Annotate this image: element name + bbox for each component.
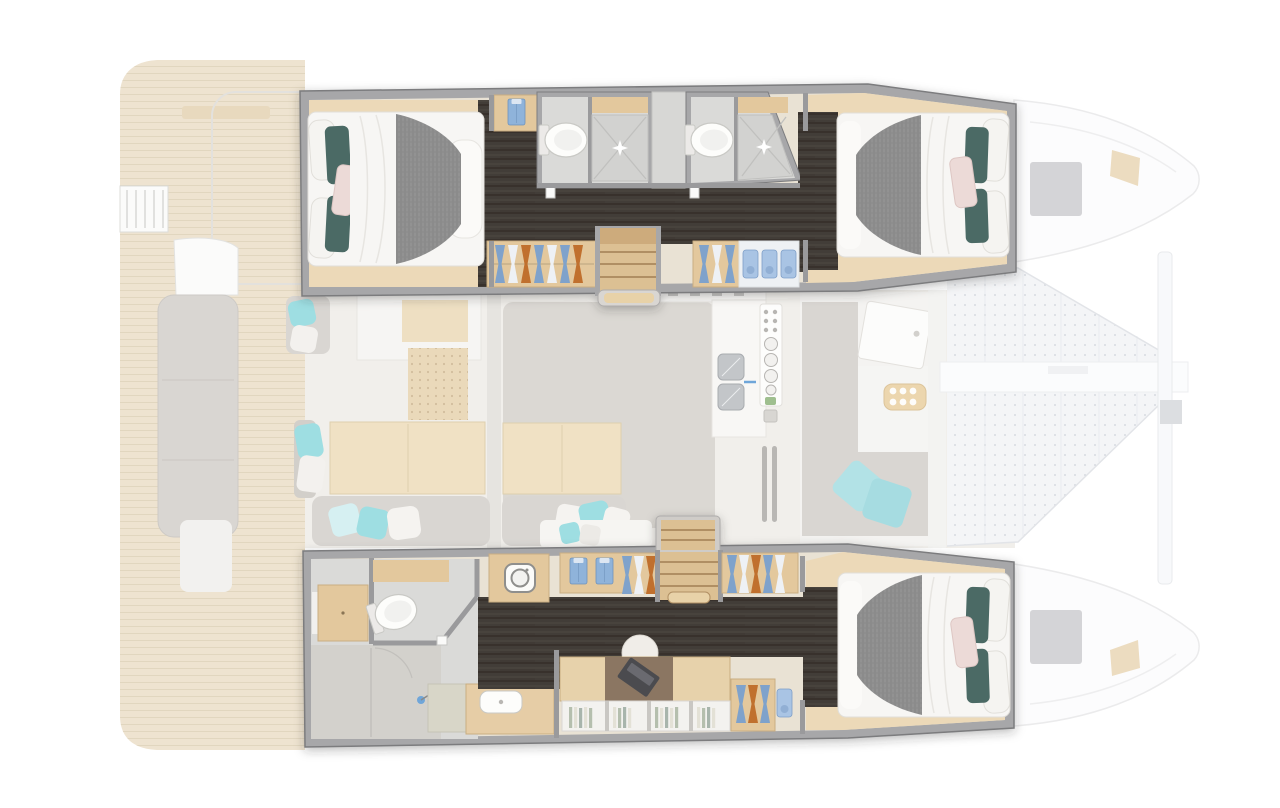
bookshelf [562,701,730,731]
wardrobe-top [494,95,540,131]
salon-sofa-fwd-center [540,520,652,548]
galley-hatch [764,410,777,422]
forward-table [857,301,932,370]
laundry-cabinet [489,554,549,602]
owner-cabin-forward [800,552,1011,734]
port-bow [1014,100,1199,262]
cushion-white [296,454,327,493]
locker-left-of-stairs [560,553,656,594]
starboard-hull-plan [303,516,1014,747]
deck-hatch [1030,610,1082,664]
toilet [539,123,587,157]
landing-between-bathrooms [652,92,686,188]
green-button [765,397,776,405]
guest-cabin-forward [800,93,1010,283]
yacht-floor-plan [0,0,1280,808]
vent-grill [762,446,767,522]
deck-hatch [1030,162,1082,216]
hanging-locker-aft [487,241,597,287]
cooktop [760,304,782,406]
forward-cockpit [802,290,946,548]
shower-1 [592,115,648,181]
shower-shelf [738,97,788,113]
speaker-panel [408,348,468,420]
companionway-port [595,226,661,306]
washing-machine [505,564,535,592]
folded-shirt [508,99,525,125]
toilet [685,123,733,157]
hanging-locker-fwd [693,241,739,287]
trampoline-net-upper [947,264,1162,362]
folded-shirt [596,558,613,584]
double-bed-forward [837,113,1010,257]
aft-corner-seat [286,296,330,354]
port-hull-plan [300,84,1016,306]
stern-ladder [120,186,168,232]
shower-room-1 [537,92,653,198]
bathroom-shelf [373,560,449,582]
starboard-bow [1014,564,1199,726]
vanity [466,684,554,734]
locker-right-of-stairs [722,553,798,593]
folded-towel [777,689,792,717]
drinks-tray [884,384,926,410]
bowsprit-fitting [1160,400,1182,424]
bench-cushion [180,520,232,592]
cockpit-step [182,106,270,119]
shower-shelf [592,97,648,113]
companionway-starboard [655,516,723,603]
door-leaf [437,636,447,645]
side-steps [174,238,238,295]
owner-double-bed [838,573,1011,717]
floor-plan-canvas [0,0,1280,808]
double-bed-aft [308,112,484,266]
shower-area [311,645,441,739]
trampoline-net-lower [947,392,1162,546]
saloon [286,290,1015,548]
towel-shelf [739,241,799,287]
shower-tray [428,684,466,732]
folded-shirt [570,558,587,584]
